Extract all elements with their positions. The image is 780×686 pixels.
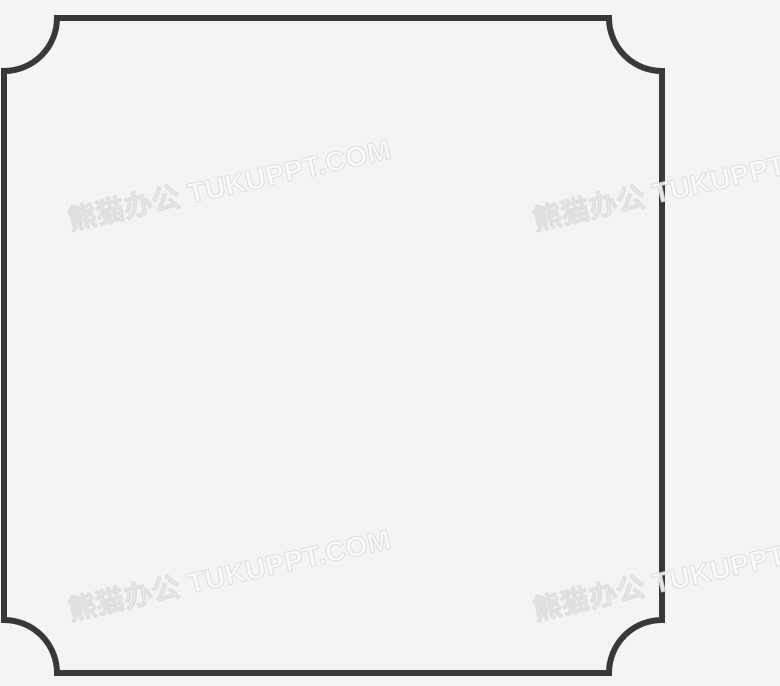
frame-border-path xyxy=(4,18,662,673)
inverted-corner-frame xyxy=(0,0,780,686)
canvas-background: 熊猫办公 TUKUPPT.COM 熊猫办公 TUKUPPT.COM 熊猫办公 T… xyxy=(0,0,780,686)
